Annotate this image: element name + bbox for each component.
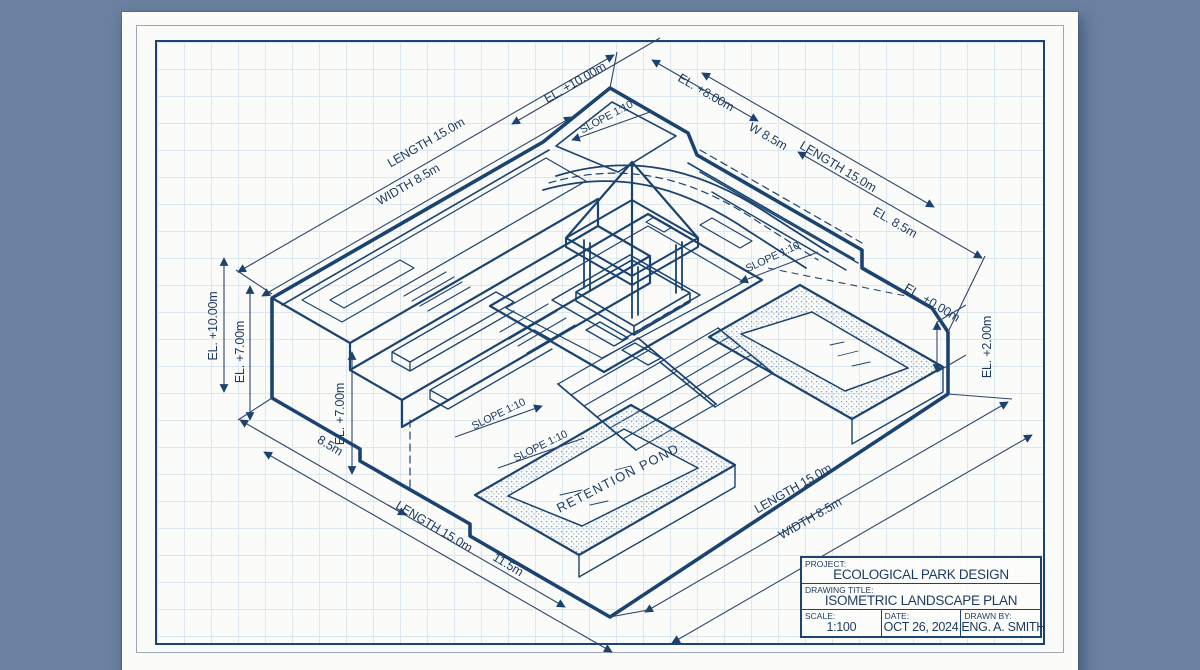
scale-value: 1:100 xyxy=(802,620,881,634)
dim-length-bottom-left: LENGTH 15.0m xyxy=(393,498,474,555)
dim-width-top-left: WIDTH 8.5m xyxy=(374,161,442,208)
dimension-labels: LENGTH 15.0m WIDTH 8.5m EL. +10.00m EL. … xyxy=(206,59,994,579)
dim-el-plus7-left: EL. +7.00m xyxy=(233,321,247,383)
blueprint-canvas: LENGTH 15.0m WIDTH 8.5m EL. +10.00m EL. … xyxy=(0,0,1200,670)
date-cell: DATE: OCT 26, 2024 xyxy=(882,610,962,636)
slope-label-top: SLOPE 1:10 xyxy=(578,98,635,136)
drawn-by-cell: DRAWN BY: ENG. A. SMITH xyxy=(961,610,1040,636)
dim-el-plus8-top-right: EL. +8.00m xyxy=(676,71,737,114)
pavilion xyxy=(566,162,698,365)
date-value: OCT 26, 2024 xyxy=(882,620,961,634)
dim-el-plus0-right: EL. +0.00m xyxy=(902,281,963,325)
title-block-drawing-title-row: DRAWING TITLE: ISOMETRIC LANDSCAPE PLAN xyxy=(802,584,1040,610)
dim-w85-top-right: W 8.5m xyxy=(746,120,789,153)
dim-el85-right: EL. 8.5m xyxy=(871,204,920,240)
dim-el-plus7-mid: EL. +7.00m xyxy=(333,383,347,445)
dim-length-top-left: LENGTH 15.0m xyxy=(385,115,467,170)
drawn-by-value: ENG. A. SMITH xyxy=(961,620,1040,634)
dim-length-top-right: LENGTH 15.0m xyxy=(797,138,878,195)
title-block-meta-row: SCALE: 1:100 DATE: OCT 26, 2024 DRAWN BY… xyxy=(802,610,1040,636)
scale-cell: SCALE: 1:100 xyxy=(802,610,882,636)
dim-el-plus2-right: EL. +2.00m xyxy=(980,316,994,378)
drawing-title-value: ISOMETRIC LANDSCAPE PLAN xyxy=(802,593,1040,608)
dim-el-plus10-left: EL. +10.00m xyxy=(206,291,220,360)
title-block-project-row: PROJECT: ECOLOGICAL PARK DESIGN xyxy=(802,558,1040,584)
project-value: ECOLOGICAL PARK DESIGN xyxy=(802,567,1040,582)
title-block: PROJECT: ECOLOGICAL PARK DESIGN DRAWING … xyxy=(800,556,1042,638)
